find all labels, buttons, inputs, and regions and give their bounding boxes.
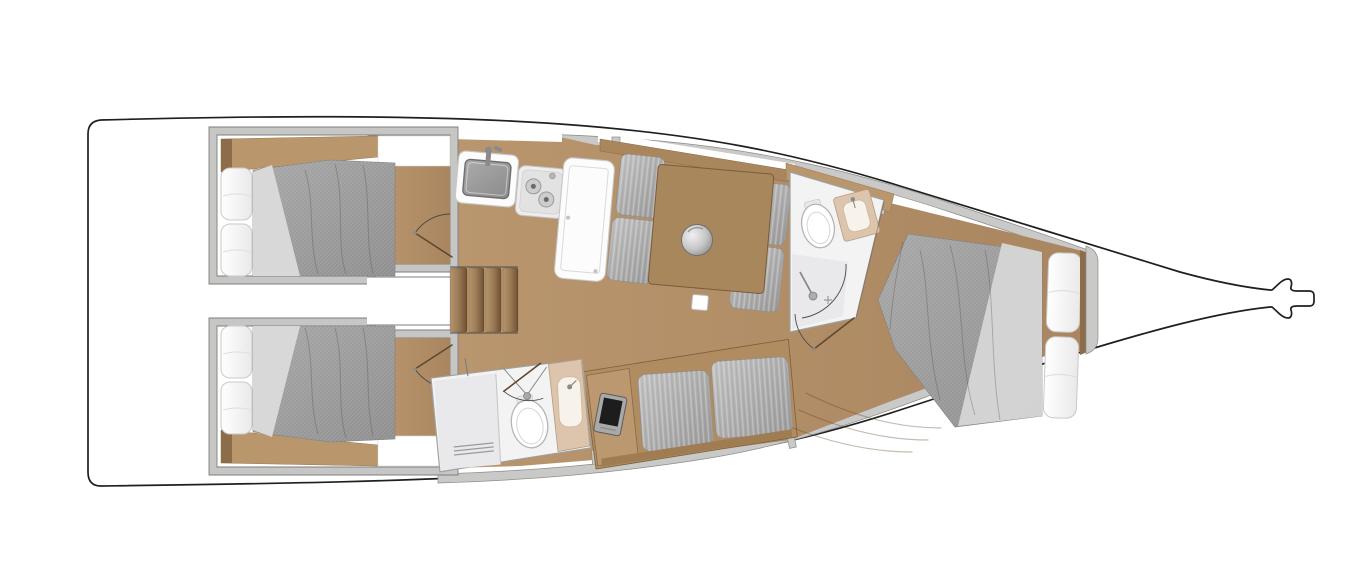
dining-table-group	[648, 164, 774, 294]
door-knob	[413, 231, 416, 234]
stair-step	[486, 268, 501, 332]
side-cubby	[378, 136, 450, 166]
shelf-end-cap	[221, 139, 232, 172]
stair-step	[450, 268, 467, 332]
stove-top	[519, 169, 563, 214]
shower-floor	[434, 374, 501, 470]
aft-cabin-port	[209, 127, 458, 284]
aft-cabin-starboard	[209, 318, 458, 475]
mast-foot	[691, 294, 708, 310]
shelf-end-cap	[221, 430, 232, 463]
stair-landing	[367, 277, 450, 325]
shower-head	[523, 392, 530, 399]
fridge-lid	[554, 157, 615, 282]
shower-head	[809, 292, 817, 300]
washbasin	[557, 376, 583, 427]
galley-fridge	[554, 157, 615, 282]
yacht-floor-plan	[0, 0, 1366, 570]
pillow	[1043, 336, 1079, 418]
door-knob	[413, 367, 416, 370]
dining-table	[648, 164, 774, 294]
stair-step	[469, 268, 484, 332]
yacht-floor-plan-canvas	[0, 0, 1366, 570]
cabin-end-cap	[1086, 246, 1098, 354]
stair-step	[503, 268, 518, 332]
table-pedestal	[682, 225, 713, 256]
door-knob	[812, 347, 815, 350]
stove-dial	[549, 173, 556, 180]
companionway	[367, 267, 518, 333]
